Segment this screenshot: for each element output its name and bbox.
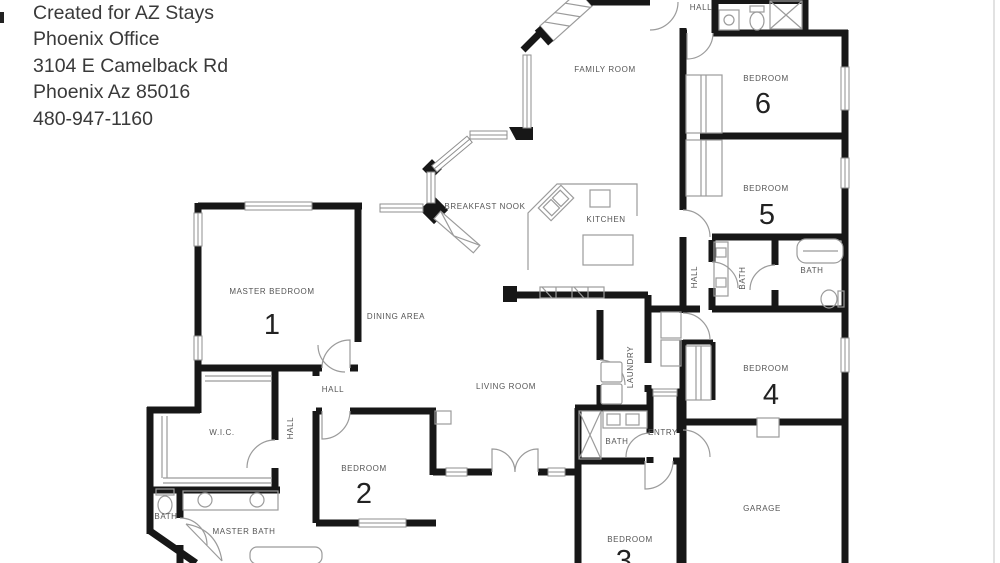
room-label-kitchen: KITCHEN [586,215,625,224]
fireplace [535,0,597,46]
room-label-bath-right-b: BATH [800,266,823,275]
bedroom2-niche [435,411,451,424]
garage-niche [757,418,779,437]
room-number-4: 4 [763,379,779,411]
sink [716,248,726,257]
room-label-bedroom-4: BEDROOM [743,364,789,373]
toilet [750,6,764,30]
top-bath-shower [770,1,802,29]
master-tub [250,547,322,563]
room-label-bath-left: BATH [154,512,177,521]
room-label-bath-right-a: BATH [738,266,747,289]
bedroom4-closet [686,346,711,400]
room-label-breakfast-nook: BREAKFAST NOOK [444,202,525,211]
room-label-garage: GARAGE [743,504,781,513]
cooktop [590,190,610,207]
room-label-wic: W.I.C. [209,428,234,437]
room-label-master-bath: MASTER BATH [213,527,276,536]
room-label-hall-top: HALL [690,3,712,12]
room-number-1: 1 [264,309,280,341]
room-label-bedroom-2: BEDROOM [341,464,387,473]
room-label-dining-area: DINING AREA [367,312,425,321]
room-number-6: 6 [755,88,771,120]
room-label-bedroom-3: BEDROOM [607,535,653,544]
kitchen-sink [538,185,573,220]
washer [601,362,622,382]
room-number-5: 5 [759,199,775,231]
room-label-entry: ENTRY [648,428,678,437]
room-label-hall-right: HALL [690,266,699,288]
room-label-bedroom-5: BEDROOM [743,184,789,193]
room-labels: FAMILY ROOM HALL BEDROOM 6 BEDROOM 5 BRE… [154,3,823,563]
room-label-bath-hall: BATH [605,437,628,446]
toilet [821,290,844,308]
room-label-family-room: FAMILY ROOM [574,65,635,74]
sink [716,278,726,287]
kitchen-island [583,235,633,265]
room-label-living-room: LIVING ROOM [476,382,536,391]
patio-door [434,211,480,253]
room-label-laundry: LAUNDRY [626,346,635,388]
sink [607,414,620,425]
sink-basin [250,493,264,507]
sink-basin [198,493,212,507]
linen-cabinet [661,312,681,338]
linen-cabinet [661,340,681,366]
bedroom6-closet [686,75,722,133]
room-label-hall-mid: HALL [322,385,344,394]
room-label-hall-corridor: HALL [286,417,295,439]
floor-plan-page: Created for AZ Stays Phoenix Office 3104… [0,0,1000,563]
walls-center [503,286,683,563]
sink [626,414,639,425]
sink [719,10,739,30]
room-number-3: 3 [616,545,632,563]
room-label-bedroom-6: BEDROOM [743,74,789,83]
room-number-2: 2 [356,478,372,510]
hall-bath-shower [579,411,601,459]
room-label-master-bedroom: MASTER BEDROOM [229,287,314,296]
dryer [601,384,622,404]
walls-family-room-bay [420,2,650,224]
kitchen-column [503,286,517,302]
sink-basin [724,15,734,25]
floor-plan-svg: FAMILY ROOM HALL BEDROOM 6 BEDROOM 5 BRE… [0,0,1000,563]
bedroom5-closet [686,140,722,196]
